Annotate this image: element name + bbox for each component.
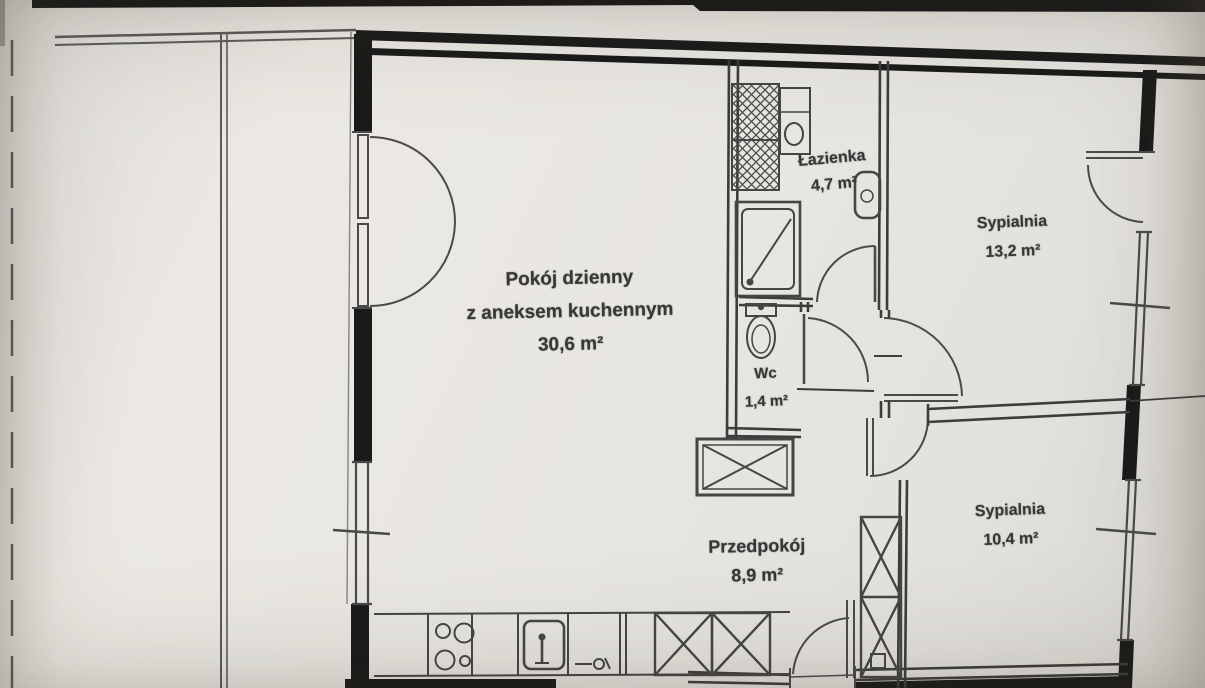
toilet-icon [746, 304, 776, 358]
window-bedroom-1 [1110, 232, 1170, 385]
cooktop-icon [436, 624, 474, 670]
hallway-fixtures [697, 439, 901, 677]
window-living-room [333, 462, 390, 604]
bathroom-door-icon [817, 246, 875, 302]
bottom-wall-segment [345, 679, 556, 688]
bedroom-2-door-icon [867, 418, 928, 476]
window-bedroom-2 [1096, 480, 1156, 640]
washing-machine-icon [732, 84, 779, 190]
right-wall-segment [1139, 70, 1157, 152]
top-wall-outer [356, 30, 1205, 66]
kitchen-sink-icon [524, 621, 564, 669]
balcony-door-icon [1086, 152, 1155, 232]
bedroom-1-door-icon [884, 318, 962, 401]
kitchen-fixtures [374, 612, 790, 676]
wardrobe-icon [861, 517, 901, 677]
left-wall-segment [354, 308, 372, 462]
tap-icon [575, 658, 610, 669]
boiler-icon [855, 172, 880, 218]
wc-door-icon [804, 314, 868, 384]
doors [352, 132, 1155, 688]
washbasin-icon [780, 88, 810, 154]
floor-plan: Pokój dzienny z aneksem kuchennym 30,6 m… [0, 0, 1205, 688]
left-wall-segment [351, 604, 369, 688]
shower-icon [736, 202, 800, 296]
floor-plan-drawing [0, 0, 1205, 688]
installation-shaft-icon [697, 439, 793, 495]
bathroom-fixtures [732, 84, 880, 358]
left-wall-segment [354, 34, 372, 132]
terrace-lines [12, 30, 356, 688]
kitchen-cabinets-icon [655, 613, 770, 675]
entrance-door-icon [790, 600, 855, 688]
french-door-icon [352, 132, 455, 308]
